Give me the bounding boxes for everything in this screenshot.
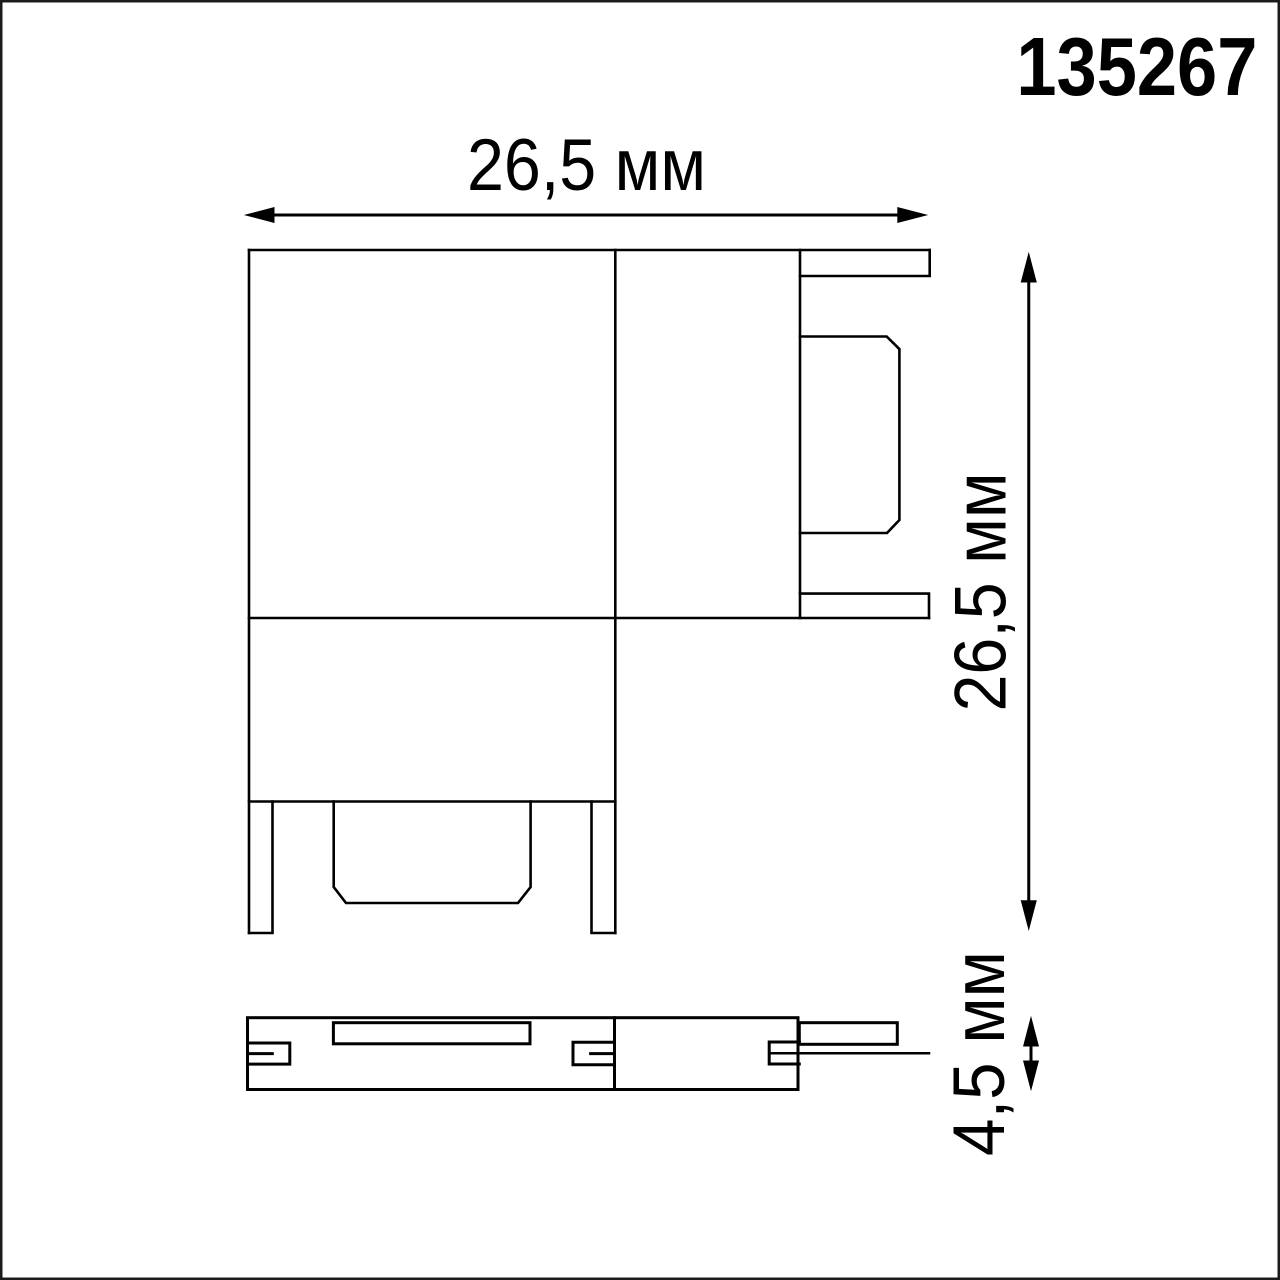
svg-text:135267: 135267 [1016,20,1257,113]
svg-text:26,5 мм: 26,5 мм [467,125,706,206]
svg-text:4,5 мм: 4,5 мм [939,951,1020,1156]
svg-text:26,5 мм: 26,5 мм [941,473,1022,712]
